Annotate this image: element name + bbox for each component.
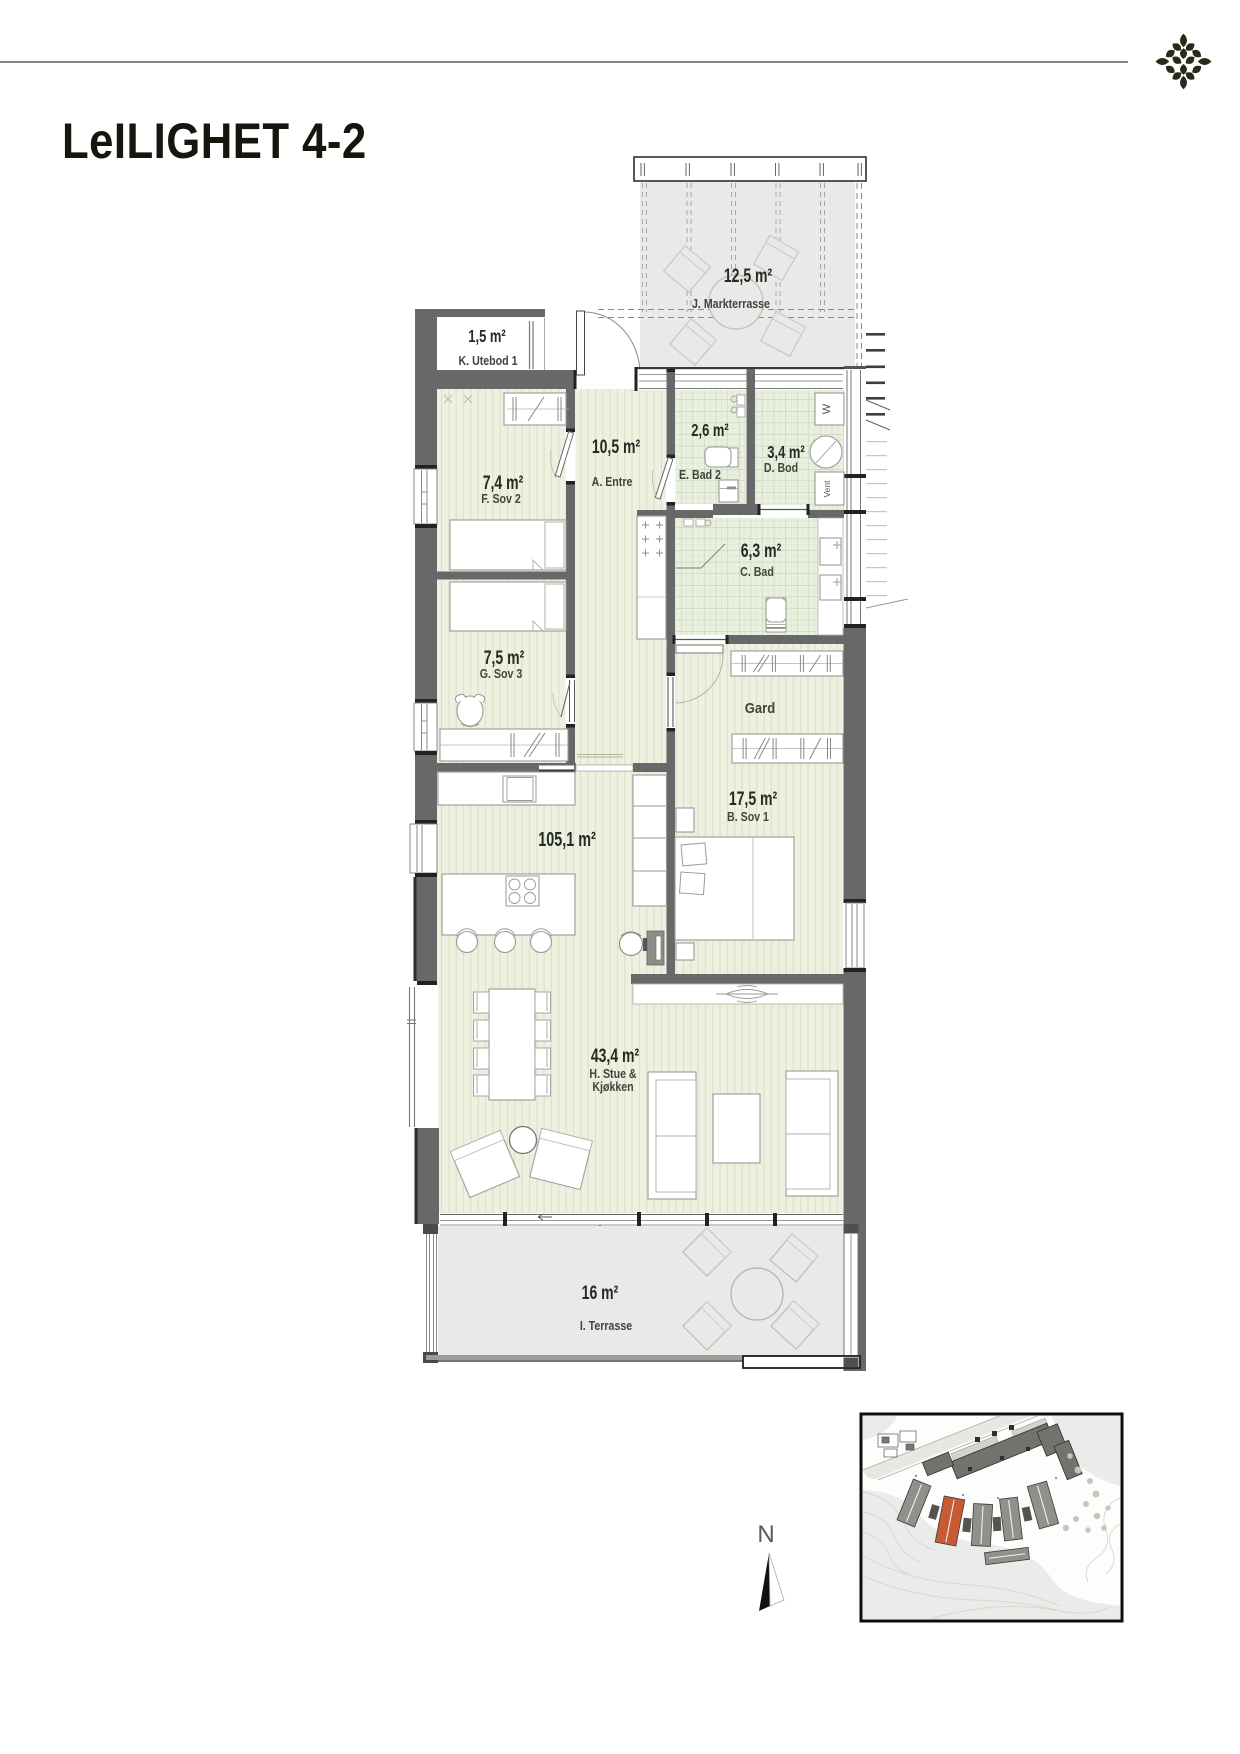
svg-text:A. Entre: A. Entre <box>592 475 633 489</box>
svg-text:12,5 m²: 12,5 m² <box>724 265 773 287</box>
svg-text:D. Bod: D. Bod <box>764 461 798 475</box>
svg-text:3,4 m²: 3,4 m² <box>767 443 804 463</box>
svg-text:LeILIGHET 4-2: LeILIGHET 4-2 <box>62 112 367 168</box>
svg-text:6,3 m²: 6,3 m² <box>741 540 782 562</box>
svg-text:C. Bad: C. Bad <box>740 565 774 579</box>
svg-text:F. Sov 2: F. Sov 2 <box>481 492 521 506</box>
svg-text:N: N <box>757 1521 774 1548</box>
svg-text:W: W <box>821 403 833 414</box>
svg-text:J. Markterrasse: J. Markterrasse <box>692 297 770 311</box>
svg-text:Gard: Gard <box>745 700 775 716</box>
svg-text:7,5 m²: 7,5 m² <box>484 647 525 669</box>
svg-text:10,5 m²: 10,5 m² <box>592 436 641 458</box>
svg-text:H. Stue &: H. Stue & <box>589 1067 637 1081</box>
svg-text:B. Sov 1: B. Sov 1 <box>727 810 769 824</box>
svg-text:G. Sov 3: G. Sov 3 <box>480 667 523 681</box>
svg-text:7,4 m²: 7,4 m² <box>483 472 524 494</box>
svg-text:Vent: Vent <box>822 480 832 498</box>
svg-text:I. Terrasse: I. Terrasse <box>580 1319 633 1333</box>
svg-text:1,5 m²: 1,5 m² <box>468 327 505 347</box>
svg-text:43,4 m²: 43,4 m² <box>591 1045 640 1067</box>
svg-text:2,6 m²: 2,6 m² <box>691 421 728 441</box>
svg-text:105,1 m²: 105,1 m² <box>538 828 596 851</box>
svg-text:16 m²: 16 m² <box>582 1282 619 1304</box>
svg-text:E. Bad 2: E. Bad 2 <box>679 468 721 482</box>
svg-text:K. Utebod 1: K. Utebod 1 <box>458 354 518 368</box>
svg-text:17,5 m²: 17,5 m² <box>729 788 778 810</box>
svg-text:Kjøkken: Kjøkken <box>592 1080 633 1094</box>
